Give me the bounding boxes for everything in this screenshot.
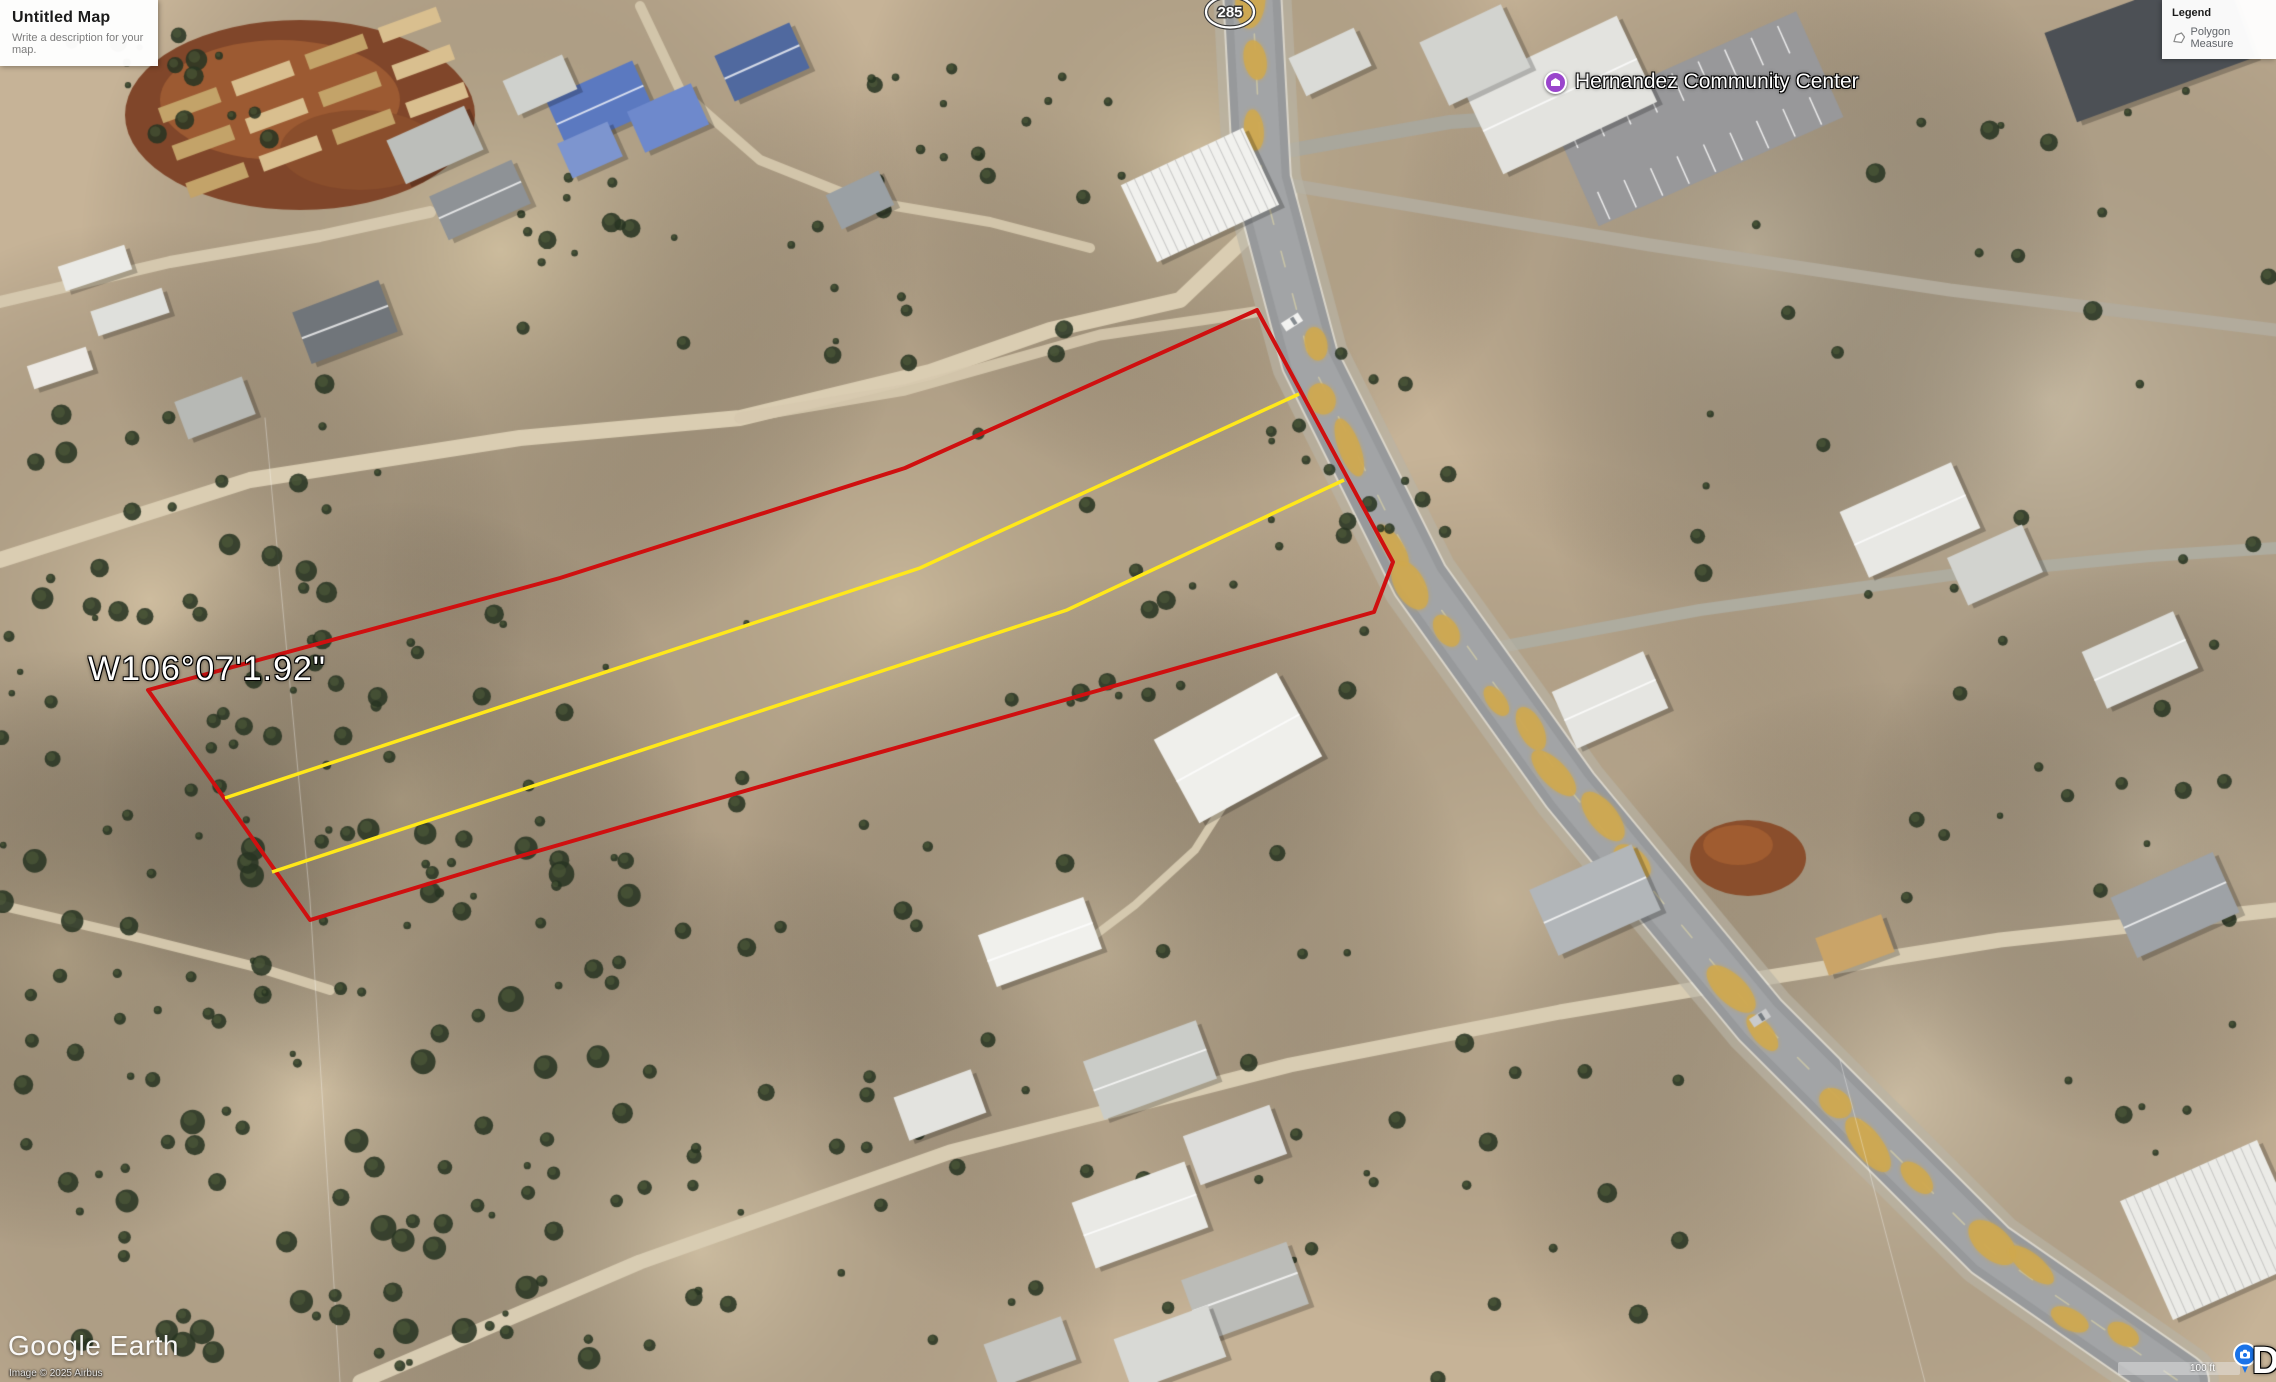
legend-item-polygon-measure[interactable]: Polygon Measure <box>2172 26 2267 50</box>
legend-title: Legend <box>2172 7 2267 19</box>
legend-item-label: Polygon Measure <box>2191 26 2267 50</box>
map-title[interactable]: Untitled Map <box>12 9 146 27</box>
polygon-outline-icon <box>2172 32 2185 44</box>
google-earth-logo: Google Earth <box>8 1330 179 1362</box>
community-center-pin-icon[interactable] <box>1544 71 1567 94</box>
map-viewport[interactable]: 285 Hernandez Community Center W106°07'1… <box>0 0 2276 1382</box>
scale-bar: 100 ft <box>2118 1362 2240 1375</box>
legend-panel[interactable]: Legend Polygon Measure <box>2162 0 2276 59</box>
route-number: 285 <box>1217 4 1242 21</box>
coordinate-label: W106°07'1.92" <box>88 650 326 689</box>
satellite-imagery <box>0 0 2276 1382</box>
place-label[interactable]: Hernandez Community Center <box>1544 70 1859 94</box>
imagery-attribution: Image © 2025 Airbus <box>9 1368 103 1379</box>
edge-text-fragment: D <box>2252 1340 2276 1382</box>
map-description[interactable]: Write a description for your map. <box>12 32 146 56</box>
route-shield: 285 <box>1201 0 1259 40</box>
scale-label: 100 ft <box>2190 1363 2215 1374</box>
place-name-text: Hernandez Community Center <box>1575 70 1859 94</box>
map-title-panel[interactable]: Untitled Map Write a description for you… <box>0 0 158 66</box>
